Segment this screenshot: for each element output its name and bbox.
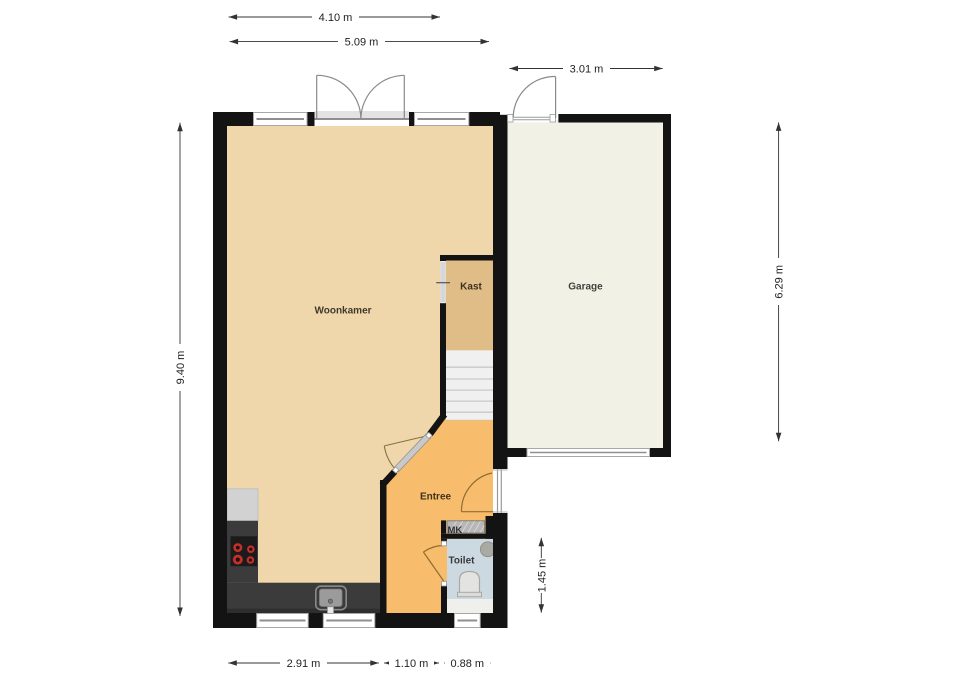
svg-text:0.88 m: 0.88 m — [450, 658, 484, 670]
svg-text:2.91 m: 2.91 m — [287, 658, 321, 670]
svg-text:4.10 m: 4.10 m — [319, 12, 353, 24]
svg-text:3.01 m: 3.01 m — [570, 64, 604, 76]
svg-text:Kast: Kast — [460, 282, 482, 293]
svg-text:6.29 m: 6.29 m — [774, 265, 786, 299]
svg-text:1.10 m: 1.10 m — [395, 658, 429, 670]
svg-text:5.09 m: 5.09 m — [345, 37, 379, 49]
svg-text:1.45 m: 1.45 m — [536, 559, 548, 593]
svg-text:MK: MK — [448, 525, 463, 536]
svg-text:Garage: Garage — [568, 282, 603, 293]
svg-text:Woonkamer: Woonkamer — [314, 306, 371, 317]
svg-text:Toilet: Toilet — [449, 556, 476, 567]
svg-text:Entree: Entree — [420, 492, 452, 503]
svg-text:9.40 m: 9.40 m — [175, 351, 187, 385]
